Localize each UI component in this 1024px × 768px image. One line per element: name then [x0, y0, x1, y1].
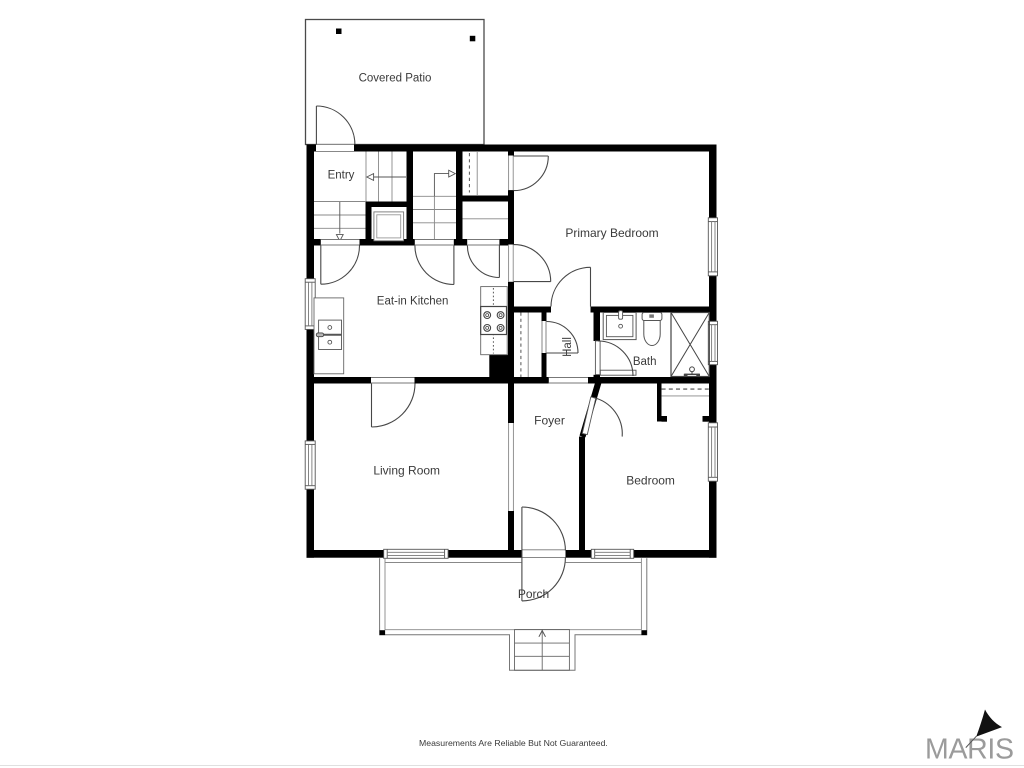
svg-text:Porch: Porch [518, 587, 549, 601]
svg-text:Living Room: Living Room [373, 463, 440, 477]
svg-text:Bath: Bath [633, 356, 657, 368]
svg-text:Bedroom: Bedroom [626, 473, 675, 487]
svg-text:Foyer: Foyer [534, 413, 565, 427]
svg-text:MARIS: MARIS [925, 734, 1014, 766]
svg-text:Hall: Hall [562, 337, 574, 357]
svg-text:Entry: Entry [328, 170, 355, 182]
svg-text:Primary Bedroom: Primary Bedroom [565, 226, 658, 240]
svg-text:Measurements Are Reliable But: Measurements Are Reliable But Not Guaran… [419, 738, 608, 748]
svg-text:Covered Patio: Covered Patio [359, 73, 432, 85]
svg-text:Eat-in Kitchen: Eat-in Kitchen [377, 296, 449, 308]
